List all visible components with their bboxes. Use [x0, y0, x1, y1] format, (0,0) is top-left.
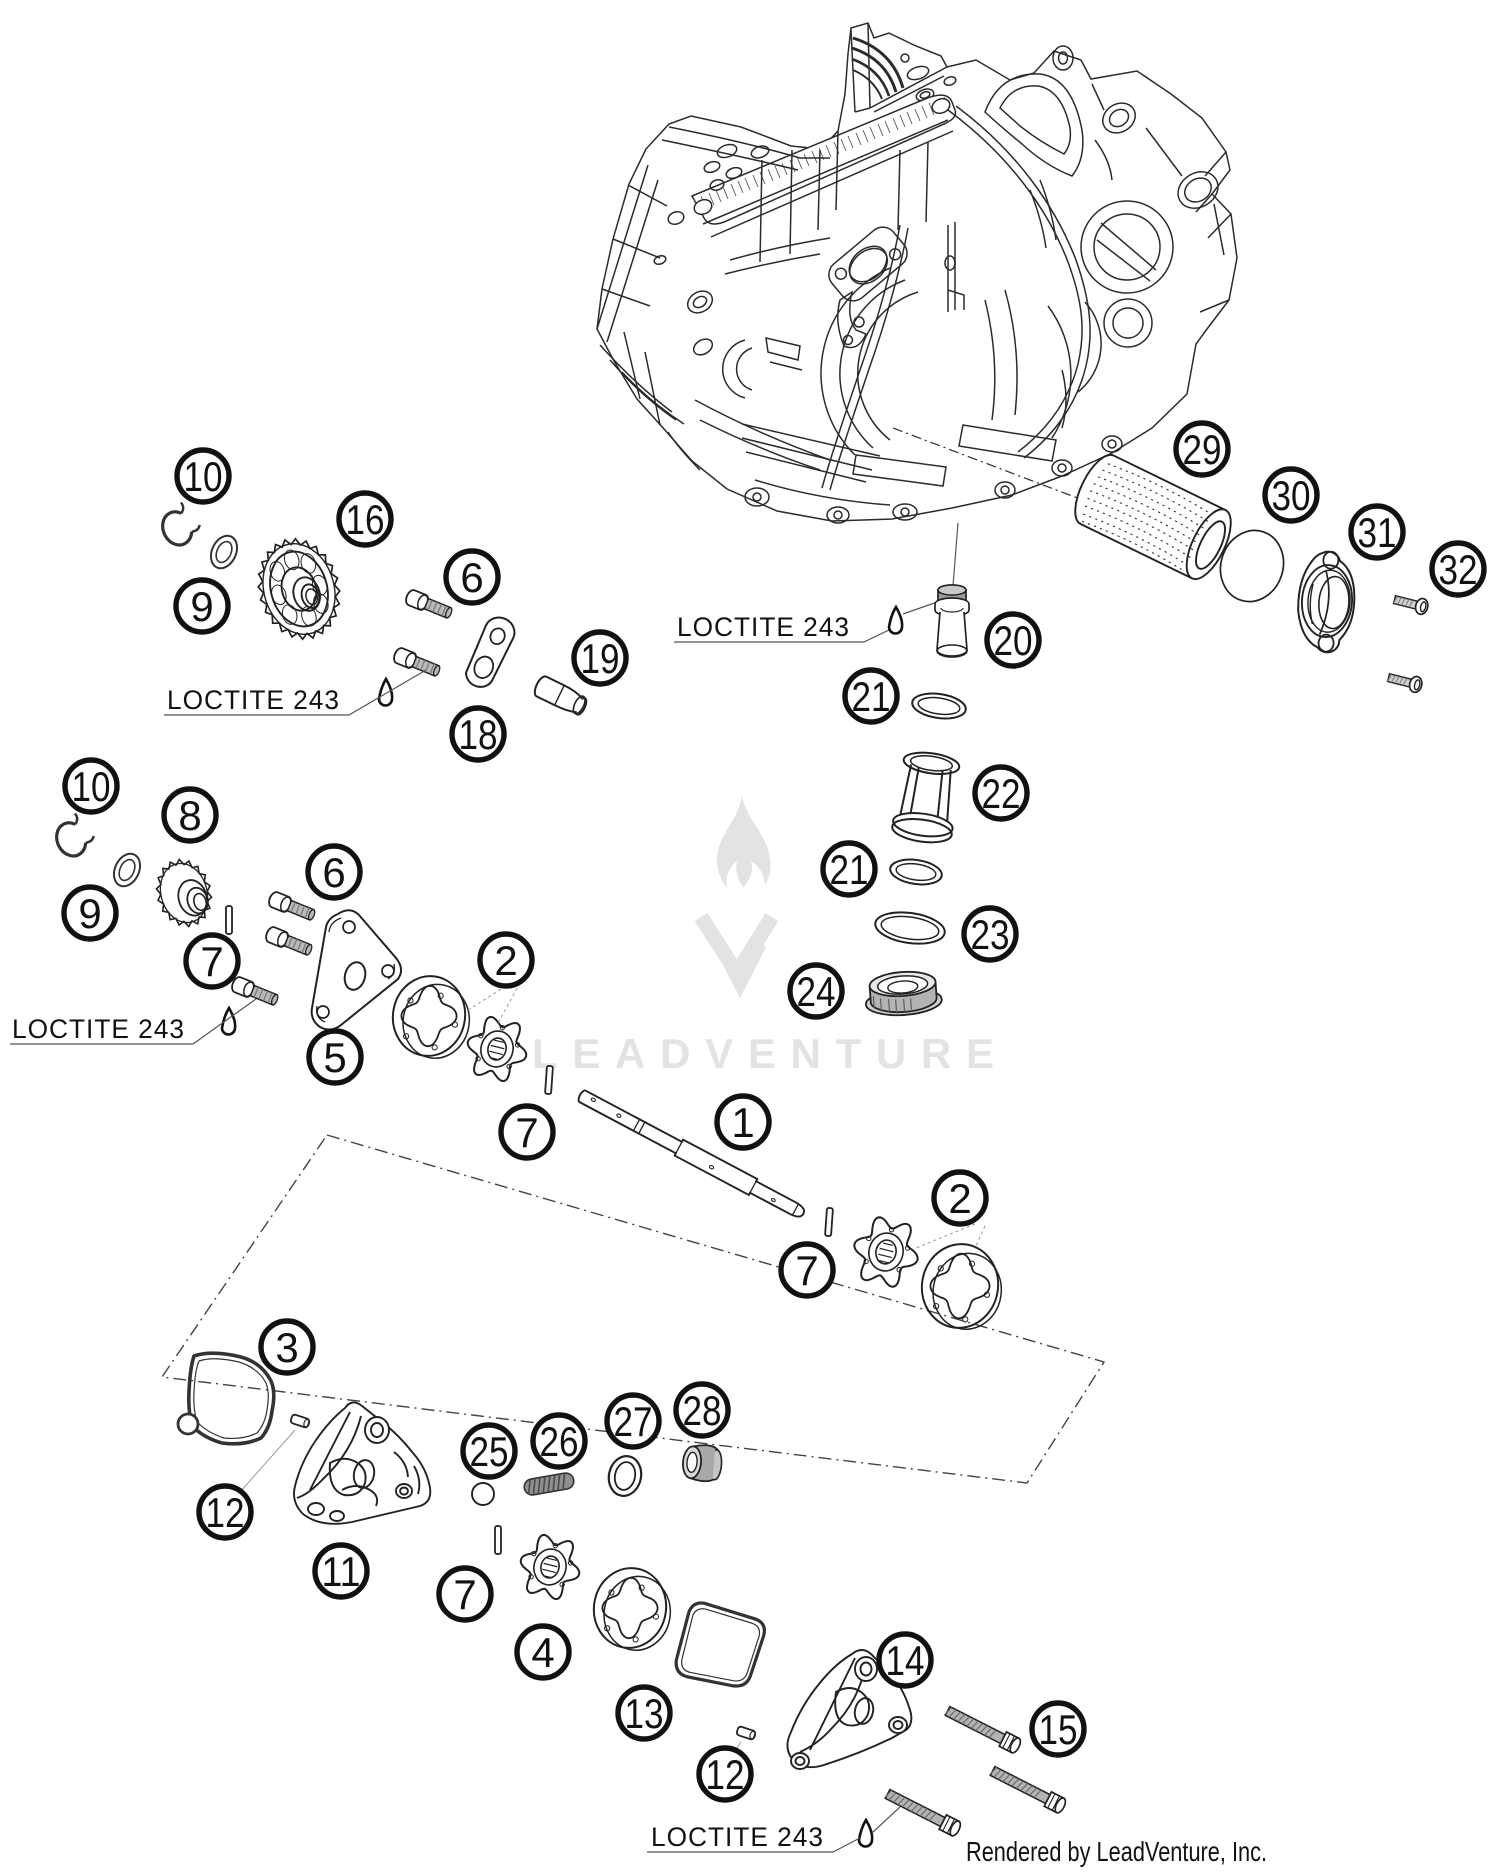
svg-text:25: 25: [470, 1428, 509, 1475]
svg-text:27: 27: [614, 1398, 653, 1445]
svg-text:10: 10: [184, 453, 223, 500]
svg-text:3: 3: [275, 1324, 298, 1371]
svg-text:29: 29: [1183, 426, 1222, 473]
svg-text:24: 24: [797, 968, 836, 1015]
svg-text:LOCTITE 243: LOCTITE 243: [677, 612, 850, 642]
svg-text:11: 11: [322, 1548, 361, 1595]
svg-text:32: 32: [1439, 546, 1478, 593]
svg-text:20: 20: [994, 617, 1033, 664]
svg-text:14: 14: [886, 1637, 925, 1684]
svg-text:LOCTITE 243: LOCTITE 243: [12, 1014, 185, 1044]
svg-text:2: 2: [494, 937, 517, 984]
svg-text:9: 9: [190, 583, 213, 630]
svg-text:26: 26: [540, 1418, 579, 1465]
svg-text:5: 5: [323, 1034, 346, 1081]
svg-text:16: 16: [346, 496, 385, 543]
svg-text:6: 6: [322, 849, 345, 896]
svg-text:7: 7: [200, 938, 223, 985]
svg-text:31: 31: [1358, 509, 1397, 556]
svg-text:22: 22: [982, 770, 1021, 817]
svg-text:LOCTITE 243: LOCTITE 243: [167, 685, 340, 715]
svg-text:10: 10: [72, 763, 111, 810]
svg-text:30: 30: [1272, 472, 1311, 519]
svg-text:LOCTITE 243: LOCTITE 243: [651, 1822, 824, 1852]
svg-text:8: 8: [178, 792, 201, 839]
svg-text:Rendered by LeadVenture, Inc.: Rendered by LeadVenture, Inc.: [966, 1836, 1267, 1867]
svg-text:1: 1: [731, 1099, 754, 1146]
svg-text:23: 23: [971, 911, 1010, 958]
svg-text:6: 6: [460, 554, 483, 601]
svg-text:2: 2: [948, 1175, 971, 1222]
svg-text:7: 7: [453, 1571, 476, 1618]
svg-text:21: 21: [830, 846, 869, 893]
svg-text:4: 4: [531, 1629, 554, 1676]
svg-text:9: 9: [78, 890, 101, 937]
svg-text:21: 21: [852, 673, 891, 720]
svg-text:7: 7: [515, 1109, 538, 1156]
svg-text:18: 18: [459, 711, 498, 758]
svg-text:12: 12: [706, 1751, 745, 1798]
svg-text:28: 28: [683, 1387, 722, 1434]
svg-text:19: 19: [581, 635, 620, 682]
svg-text:12: 12: [206, 1489, 245, 1536]
svg-text:15: 15: [1039, 1706, 1078, 1753]
svg-text:7: 7: [795, 1247, 818, 1294]
svg-text:13: 13: [625, 1690, 664, 1737]
